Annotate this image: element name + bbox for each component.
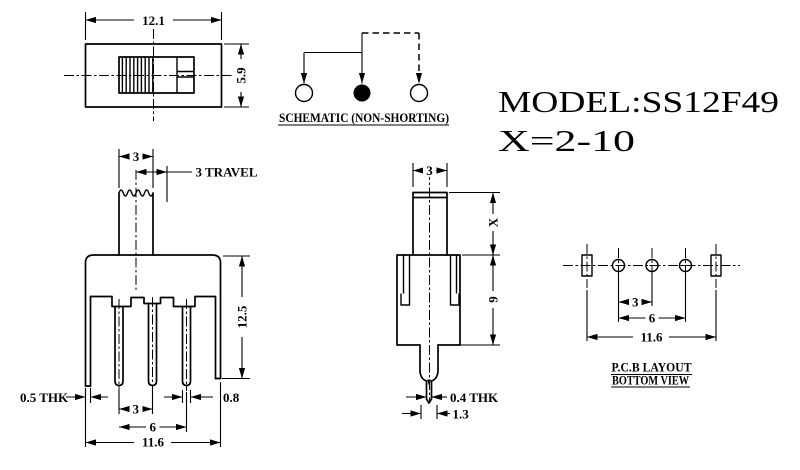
- dim-actuator-height: X: [449, 193, 501, 256]
- top-view: 12.1 5.9: [64, 12, 249, 121]
- terminal-left-circle: [296, 85, 313, 102]
- front-view: 3 3 TRAVEL 12.5 0.5 THK 0.8: [20, 149, 258, 449]
- terminal-common-circle: [354, 85, 371, 102]
- dim-knob-width-label: 3: [133, 149, 140, 164]
- dim-top-height-label: 5.9: [234, 67, 249, 84]
- dim-top-width-label: 12.1: [142, 13, 165, 28]
- dim-pin-base-width-label: 1.3: [453, 407, 470, 422]
- dim-pin-thickness: 0.4 THK: [406, 390, 499, 405]
- pcb-layout-view: 3 6 11.6 P.C.B LAYOUT BOTTOM VIEW: [563, 244, 740, 388]
- dim-overall-width-label: 11.6: [142, 434, 165, 449]
- dim-front-height-label: 12.5: [235, 305, 250, 328]
- title-block: MODEL:SS12F49 X=2-10: [498, 84, 779, 158]
- drawing-sheet: 12.1 5.9 SCHEMATIC (NON-SHORTING) MODEL:…: [0, 0, 800, 470]
- dim-knob-width: 3: [119, 149, 153, 188]
- dim-pcb-overall-label: 11.6: [640, 329, 663, 344]
- dim-pin-pitch-label: 3: [133, 401, 140, 416]
- dim-pcb-span-label: 6: [649, 310, 656, 325]
- pin-centerlines: [119, 297, 187, 391]
- technical-drawing-canvas: 12.1 5.9 SCHEMATIC (NON-SHORTING) MODEL:…: [0, 0, 800, 470]
- dim-body-height: 9: [440, 255, 501, 345]
- dim-body-height-label: 9: [486, 296, 501, 303]
- dim-actuator-height-label: X: [486, 217, 501, 227]
- dim-travel-label: 3 TRAVEL: [196, 165, 258, 180]
- pcb-caption-line2: BOTTOM VIEW: [612, 373, 689, 388]
- dim-knob-depth-label: 3: [426, 163, 433, 178]
- model-number-text: MODEL:SS12F49: [498, 84, 779, 119]
- dim-pin-pitch: 3: [119, 390, 153, 416]
- side-pin-crimp-mark: [427, 380, 431, 386]
- schematic-caption: SCHEMATIC (NON-SHORTING): [279, 110, 449, 125]
- dim-tab-thickness-label: 0.5 THK: [20, 390, 69, 405]
- dim-tab-thickness: 0.5 THK: [20, 388, 108, 405]
- dim-pcb-pitch-label: 3: [632, 294, 639, 309]
- schematic-view: SCHEMATIC (NON-SHORTING): [278, 33, 449, 125]
- side-view: 3 X 9 0.4 THK 1.3: [397, 163, 501, 422]
- dim-pin-span-label: 6: [149, 419, 156, 434]
- dim-front-height: 12.5: [222, 256, 250, 379]
- dim-pin-base-width: 1.3: [402, 405, 469, 422]
- dim-pin-thickness-label: 0.4 THK: [450, 390, 499, 405]
- dim-travel: 3 TRAVEL: [136, 165, 258, 203]
- x-range-text: X=2-10: [498, 123, 635, 158]
- terminal-right-circle: [411, 85, 428, 102]
- dim-pin-width: 0.8: [164, 390, 240, 405]
- side-right-bracket: [451, 255, 460, 305]
- side-left-bracket: [401, 255, 410, 305]
- dim-pin-width-label: 0.8: [223, 390, 240, 405]
